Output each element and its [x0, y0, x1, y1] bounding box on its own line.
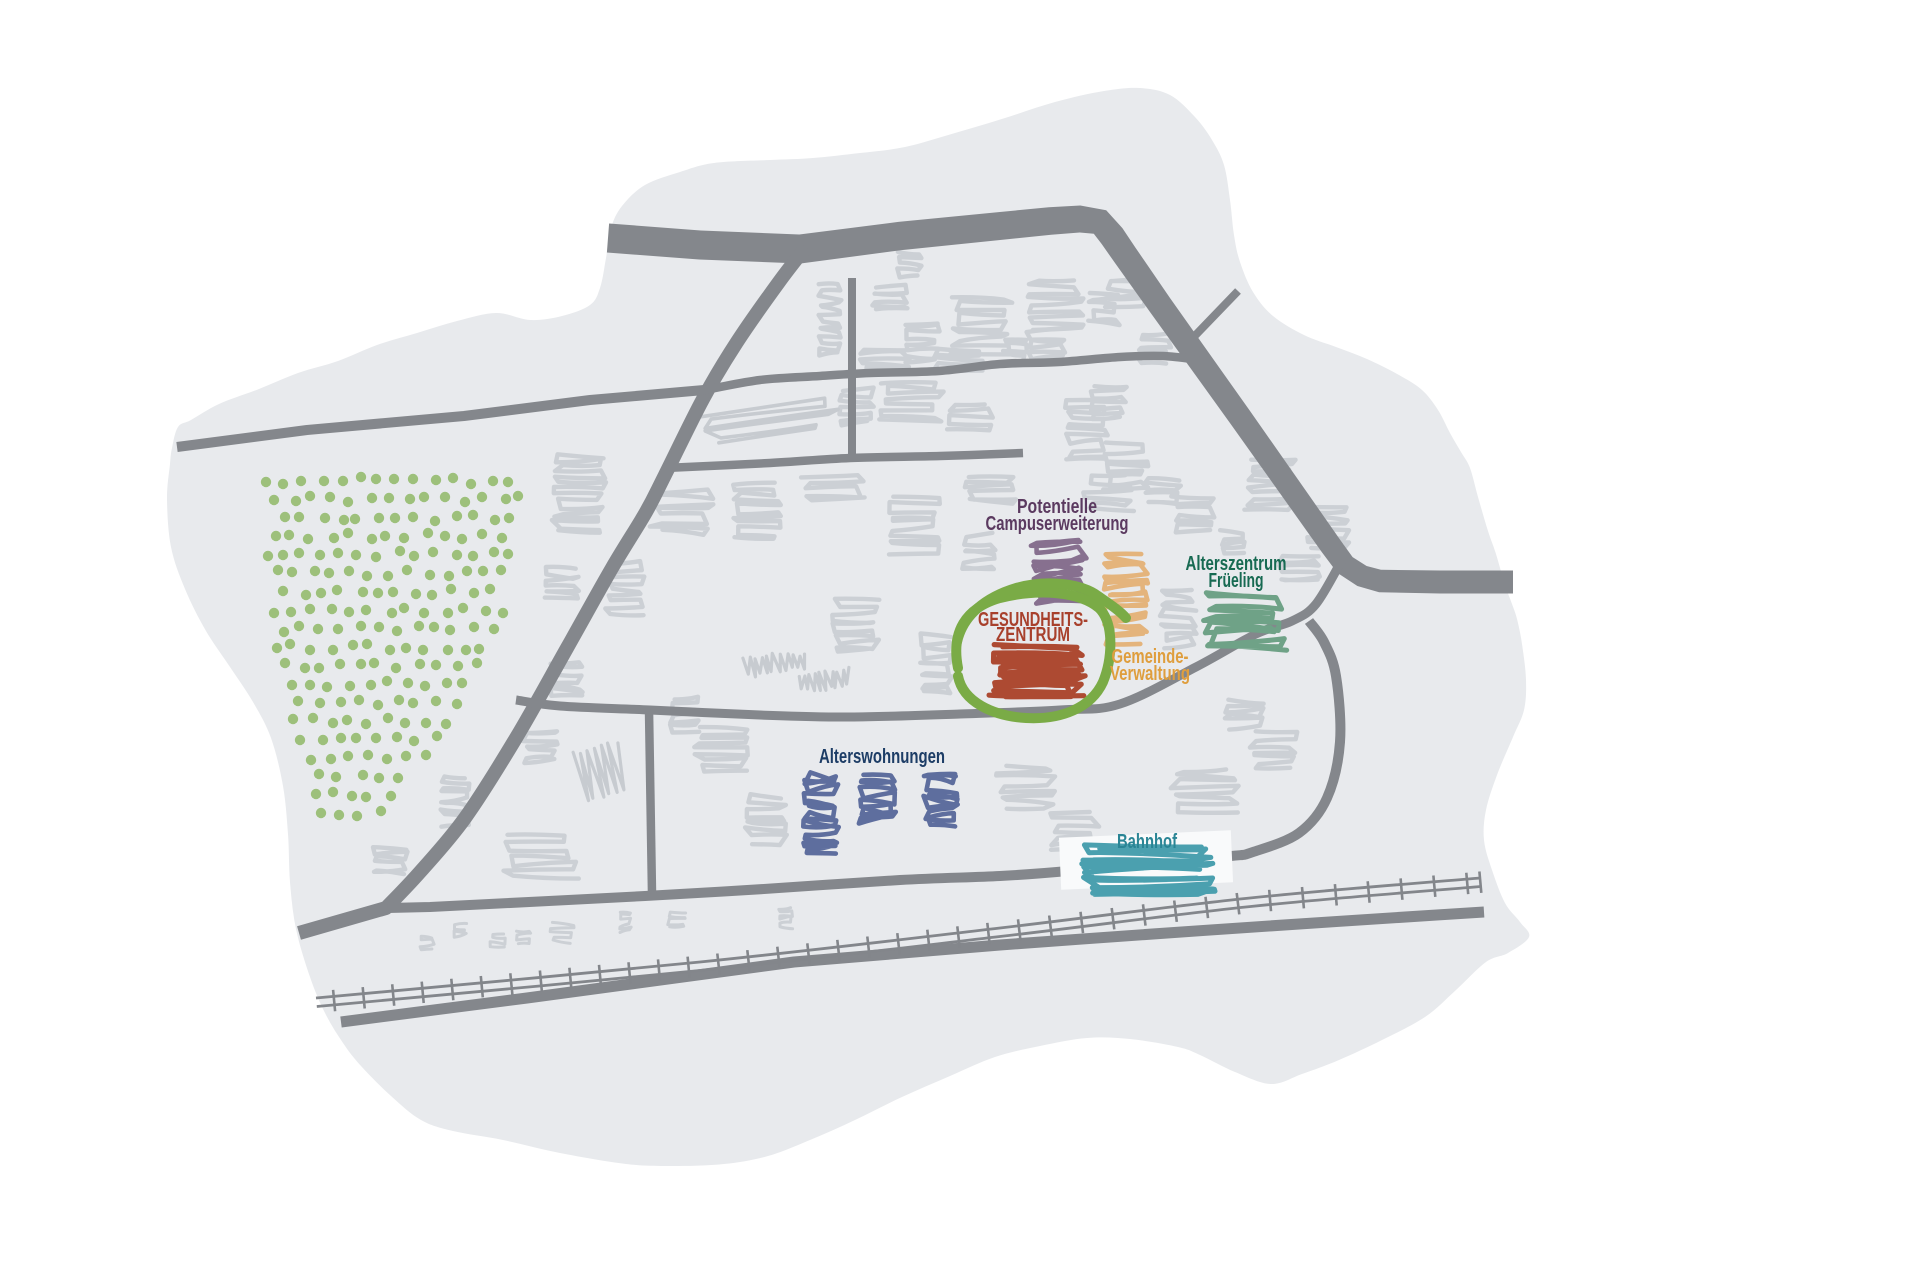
svg-text:Früeling: Früeling — [1209, 569, 1264, 592]
svg-text:ZENTRUM: ZENTRUM — [996, 623, 1070, 646]
svg-text:Verwaltung: Verwaltung — [1110, 662, 1190, 685]
svg-text:Bahnhof: Bahnhof — [1117, 830, 1177, 853]
svg-text:Alterswohnungen: Alterswohnungen — [819, 745, 945, 768]
svg-text:Campuserweiterung: Campuserweiterung — [986, 512, 1129, 535]
